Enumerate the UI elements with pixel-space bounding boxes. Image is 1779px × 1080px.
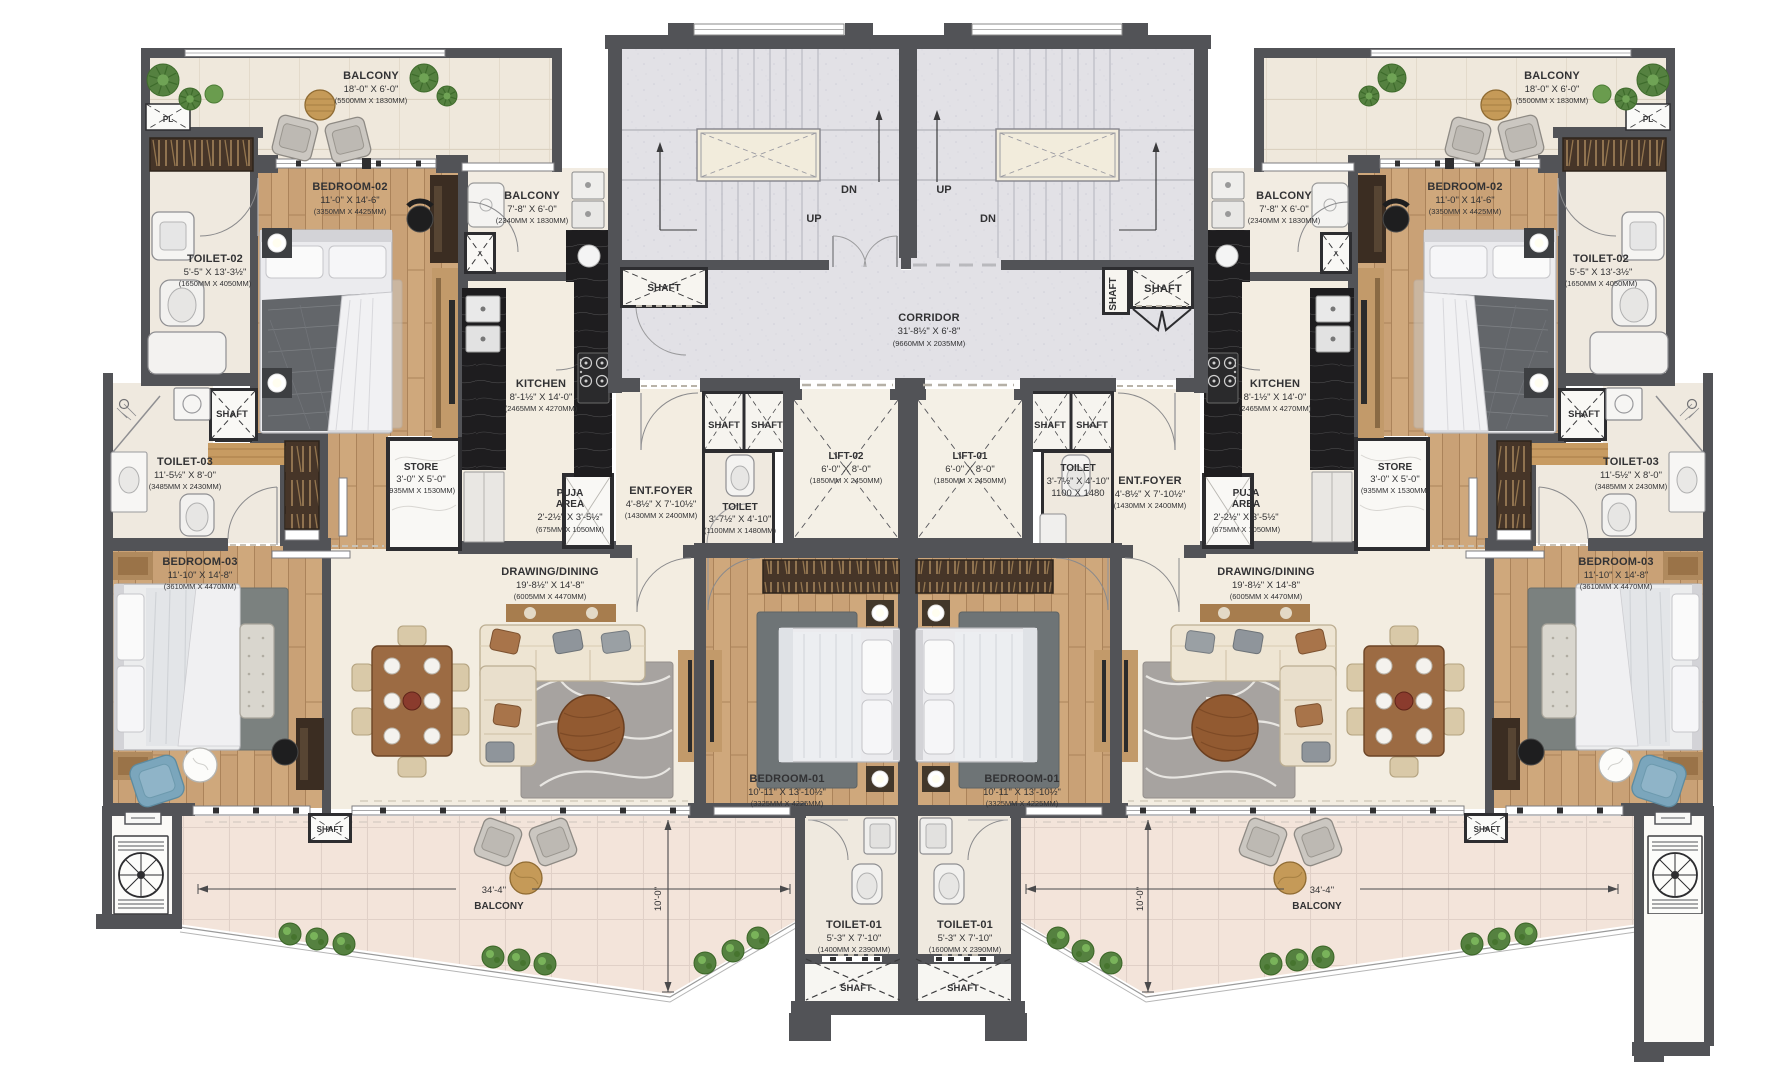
svg-text:8'-1½" X 14'-0": 8'-1½" X 14'-0" — [1244, 392, 1307, 403]
svg-text:19'-8½" X 14'-8": 19'-8½" X 14'-8" — [516, 580, 584, 591]
svg-text:BALCONY: BALCONY — [1292, 901, 1342, 912]
svg-text:10'-11" X 13'-10½": 10'-11" X 13'-10½" — [983, 787, 1061, 798]
svg-text:SHAFT: SHAFT — [317, 825, 344, 834]
svg-text:(1650MM X 4050MM): (1650MM X 4050MM) — [1565, 279, 1638, 288]
svg-text:BEDROOM-03: BEDROOM-03 — [1578, 556, 1653, 568]
svg-text:UP: UP — [936, 184, 951, 196]
svg-text:SHAFT: SHAFT — [751, 420, 783, 431]
svg-text:KITCHEN: KITCHEN — [1250, 378, 1300, 390]
svg-text:BEDROOM-01: BEDROOM-01 — [749, 773, 824, 785]
svg-text:5'-3" X 7'-10": 5'-3" X 7'-10" — [938, 933, 993, 944]
svg-text:11'-0" X 14'-6": 11'-0" X 14'-6" — [320, 195, 379, 206]
svg-text:4'-8½" X 7'-10½": 4'-8½" X 7'-10½" — [626, 499, 697, 510]
svg-text:(675MM X 1050MM): (675MM X 1050MM) — [536, 525, 605, 534]
svg-text:(1430MM X 2400MM): (1430MM X 2400MM) — [625, 511, 698, 520]
svg-text:10'-11" X 13'-10½": 10'-11" X 13'-10½" — [748, 787, 826, 798]
svg-text:18'-0" X 6'-0": 18'-0" X 6'-0" — [1525, 84, 1580, 95]
svg-text:(9660MM X 2035MM): (9660MM X 2035MM) — [893, 339, 966, 348]
svg-text:(3350MM X 4425MM): (3350MM X 4425MM) — [314, 207, 387, 216]
svg-text:BALCONY: BALCONY — [1524, 70, 1580, 82]
svg-text:(2340MM X 1830MM): (2340MM X 1830MM) — [496, 216, 569, 225]
svg-text:DRAWING/DINING: DRAWING/DINING — [1217, 566, 1315, 578]
svg-text:10'-0": 10'-0" — [653, 887, 664, 911]
svg-text:TOILET: TOILET — [1060, 463, 1095, 474]
svg-text:TOILET-02: TOILET-02 — [1573, 253, 1629, 265]
svg-text:11'-5½" X 8'-0": 11'-5½" X 8'-0" — [1600, 470, 1662, 481]
svg-text:(3485MM X 2430MM): (3485MM X 2430MM) — [1595, 482, 1668, 491]
svg-text:(3610MM X 4470MM): (3610MM X 4470MM) — [164, 582, 237, 591]
svg-text:34'-4'': 34'-4'' — [1310, 885, 1335, 896]
svg-text:DRAWING/DINING: DRAWING/DINING — [501, 566, 599, 578]
svg-text:BEDROOM-03: BEDROOM-03 — [162, 556, 237, 568]
svg-text:(2465MM X 4270MM): (2465MM X 4270MM) — [505, 404, 578, 413]
svg-text:3'-0" X 5'-0": 3'-0" X 5'-0" — [1370, 474, 1419, 485]
svg-text:19'-8½" X 14'-8": 19'-8½" X 14'-8" — [1232, 580, 1300, 591]
svg-text:BEDROOM-01: BEDROOM-01 — [984, 773, 1059, 785]
svg-text:STORE: STORE — [1378, 462, 1413, 473]
svg-text:(1430MM X 2400MM): (1430MM X 2400MM) — [1114, 501, 1187, 510]
svg-text:KITCHEN: KITCHEN — [516, 378, 566, 390]
svg-text:SHAFT: SHAFT — [947, 983, 979, 994]
svg-text:SHAFT: SHAFT — [647, 283, 680, 294]
svg-text:11'-0" X 14'-6": 11'-0" X 14'-6" — [1435, 195, 1494, 206]
svg-text:SHAFT: SHAFT — [1144, 283, 1182, 295]
svg-text:BEDROOM-02: BEDROOM-02 — [312, 181, 387, 193]
svg-text:TOILET-03: TOILET-03 — [157, 456, 213, 468]
svg-text:5'-5" X 13'-3½": 5'-5" X 13'-3½" — [1570, 267, 1633, 278]
svg-text:TOILET: TOILET — [722, 502, 757, 513]
svg-text:STORE: STORE — [404, 462, 439, 473]
svg-text:(1100MM X 1480MM): (1100MM X 1480MM) — [704, 526, 776, 535]
svg-text:LIFT-01: LIFT-01 — [952, 451, 987, 462]
svg-text:(3610MM X 4470MM): (3610MM X 4470MM) — [1580, 582, 1653, 591]
svg-text:(3485MM X 2430MM): (3485MM X 2430MM) — [149, 482, 222, 491]
svg-text:(1600MM X 2390MM): (1600MM X 2390MM) — [929, 945, 1002, 954]
svg-text:DN: DN — [841, 184, 857, 196]
svg-text:7'-8" X 6'-0": 7'-8" X 6'-0" — [1259, 204, 1308, 215]
svg-text:(6005MM X 4470MM): (6005MM X 4470MM) — [1230, 592, 1303, 601]
svg-text:SHAFT: SHAFT — [708, 420, 740, 431]
svg-text:SHAFT: SHAFT — [840, 983, 872, 994]
svg-text:SHAFT: SHAFT — [1108, 277, 1119, 310]
svg-text:AREA: AREA — [1232, 499, 1260, 510]
svg-text:2'-2½" X 3'-5½": 2'-2½" X 3'-5½" — [537, 512, 602, 523]
svg-text:11'-10" X 14'-8": 11'-10" X 14'-8" — [168, 570, 233, 581]
svg-text:(935MM X 1530MM): (935MM X 1530MM) — [387, 486, 456, 495]
svg-text:PUJA: PUJA — [557, 488, 584, 499]
svg-text:34'-4'': 34'-4'' — [482, 885, 507, 896]
svg-text:SHAFT: SHAFT — [1034, 420, 1066, 431]
svg-text:(1650MM X 4050MM): (1650MM X 4050MM) — [179, 279, 252, 288]
svg-text:TOILET-03: TOILET-03 — [1603, 456, 1659, 468]
svg-text:(3325MM X 4225MM): (3325MM X 4225MM) — [751, 799, 824, 808]
svg-text:(675MM X 1050MM): (675MM X 1050MM) — [1212, 525, 1281, 534]
svg-text:(3350MM X 4425MM): (3350MM X 4425MM) — [1429, 207, 1502, 216]
svg-text:7'-8" X 6'-0": 7'-8" X 6'-0" — [507, 204, 556, 215]
svg-text:BALCONY: BALCONY — [1256, 190, 1312, 202]
svg-text:6'-0" X 8'-0": 6'-0" X 8'-0" — [945, 464, 994, 475]
svg-text:18'-0" X 6'-0": 18'-0" X 6'-0" — [344, 84, 399, 95]
svg-text:TOILET-01: TOILET-01 — [937, 919, 993, 931]
svg-text:CORRIDOR: CORRIDOR — [898, 312, 960, 324]
svg-text:SHAFT: SHAFT — [1474, 825, 1501, 834]
svg-text:(1850MM X 2450MM): (1850MM X 2450MM) — [810, 476, 883, 485]
svg-text:5'-3" X 7'-10": 5'-3" X 7'-10" — [827, 933, 882, 944]
svg-text:11'-10" X 14'-8": 11'-10" X 14'-8" — [1584, 570, 1649, 581]
svg-text:BALCONY: BALCONY — [343, 70, 399, 82]
svg-text:ENT.FOYER: ENT.FOYER — [1118, 475, 1182, 487]
svg-text:2'-2½" X 3'-5½": 2'-2½" X 3'-5½" — [1213, 512, 1278, 523]
svg-text:(2465MM X 4270MM): (2465MM X 4270MM) — [1239, 404, 1312, 413]
svg-text:BALCONY: BALCONY — [504, 190, 560, 202]
svg-text:TOILET-01: TOILET-01 — [826, 919, 882, 931]
svg-text:PL: PL — [1643, 115, 1653, 124]
svg-text:3'-0" X 5'-0": 3'-0" X 5'-0" — [396, 474, 445, 485]
svg-text:3'-7½" X 4'-10": 3'-7½" X 4'-10" — [1047, 476, 1110, 487]
svg-text:PL: PL — [163, 115, 173, 124]
svg-text:SHAFT: SHAFT — [216, 409, 248, 420]
svg-text:(1400MM X 2390MM): (1400MM X 2390MM) — [818, 945, 891, 954]
svg-text:4'-8½" X 7'-10½": 4'-8½" X 7'-10½" — [1115, 489, 1186, 500]
svg-text:(6005MM X 4470MM): (6005MM X 4470MM) — [514, 592, 587, 601]
svg-text:(935MM X 1530MM): (935MM X 1530MM) — [1361, 486, 1430, 495]
svg-text:AREA: AREA — [556, 499, 584, 510]
svg-text:(5500MM X 1830MM): (5500MM X 1830MM) — [335, 96, 408, 105]
svg-text:UP: UP — [806, 213, 821, 225]
svg-text:1100 X 1480: 1100 X 1480 — [1051, 488, 1104, 499]
svg-text:LIFT-02: LIFT-02 — [828, 451, 863, 462]
svg-text:DN: DN — [980, 213, 996, 225]
svg-text:BALCONY: BALCONY — [474, 901, 524, 912]
svg-text:3'-7½" X 4'-10": 3'-7½" X 4'-10" — [709, 514, 772, 525]
svg-text:(1850MM X 2450MM): (1850MM X 2450MM) — [934, 476, 1007, 485]
svg-text:(3325MM X 4225MM): (3325MM X 4225MM) — [986, 799, 1059, 808]
svg-text:10'-0": 10'-0" — [1135, 887, 1146, 911]
svg-text:11'-5½" X 8'-0": 11'-5½" X 8'-0" — [154, 470, 216, 481]
svg-text:SHAFT: SHAFT — [1568, 409, 1600, 420]
svg-text:PUJA: PUJA — [1233, 488, 1260, 499]
svg-text:SHAFT: SHAFT — [1076, 420, 1108, 431]
svg-text:31'-8½" X 6'-8": 31'-8½" X 6'-8" — [898, 326, 961, 337]
svg-text:5'-5" X 13'-3½": 5'-5" X 13'-3½" — [184, 267, 247, 278]
svg-text:8'-1½" X 14'-0": 8'-1½" X 14'-0" — [510, 392, 573, 403]
svg-text:TOILET-02: TOILET-02 — [187, 253, 243, 265]
svg-text:6'-0" X 8'-0": 6'-0" X 8'-0" — [821, 464, 870, 475]
svg-text:(2340MM X 1830MM): (2340MM X 1830MM) — [1248, 216, 1321, 225]
svg-text:BEDROOM-02: BEDROOM-02 — [1427, 181, 1502, 193]
svg-text:ENT.FOYER: ENT.FOYER — [629, 485, 693, 497]
svg-text:(5500MM X 1830MM): (5500MM X 1830MM) — [1516, 96, 1589, 105]
